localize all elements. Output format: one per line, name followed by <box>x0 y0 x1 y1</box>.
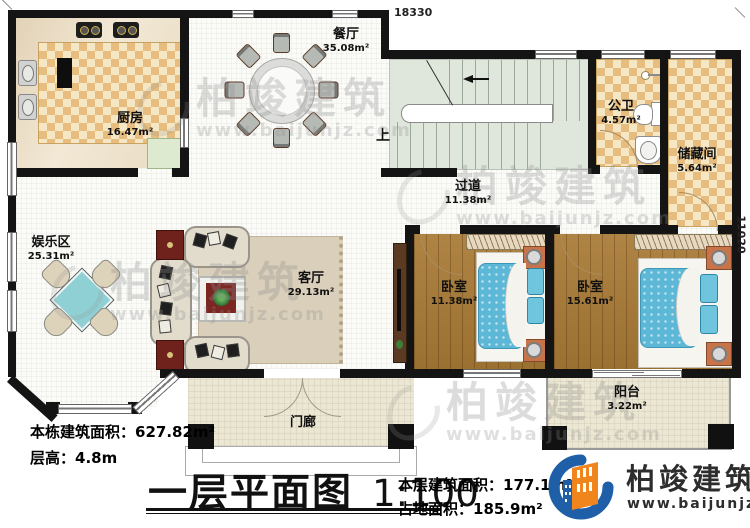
plant-icon <box>396 340 403 349</box>
porch-steps-inner <box>202 446 400 463</box>
brand-name: 柏竣建筑 <box>626 456 750 498</box>
title-underline-thin <box>146 513 440 514</box>
bed2-pillow <box>700 274 718 303</box>
lamp-icon <box>526 342 542 358</box>
window-stair-top <box>535 50 577 59</box>
wall-kitchen-bottom <box>8 168 138 177</box>
bed1-pillow <box>527 297 544 324</box>
plant-icon <box>213 289 230 306</box>
dining-chair <box>273 128 290 148</box>
kitchen-pass-window <box>180 118 189 148</box>
stove-icon <box>113 22 139 38</box>
floor-height-line: 层高：4.8m <box>30 447 117 468</box>
dimension-right: 11020 <box>735 215 748 253</box>
room-label-bedroom2: 卧室15.61m² <box>560 281 620 307</box>
bay-window-bottom <box>58 404 132 414</box>
building-area-value: 627.82m² <box>135 423 215 441</box>
stair-arrow-line <box>473 78 489 80</box>
kitchen-sink-icon <box>18 60 37 86</box>
tv-icon <box>397 269 401 331</box>
brand-url: www.baijunjz.com <box>627 496 750 512</box>
wall-kitchen-right-lower <box>180 148 189 177</box>
window-left-1 <box>7 142 17 196</box>
room-label-entertainment: 娱乐区25.31m² <box>16 236 86 262</box>
sofa-pillow <box>195 343 209 358</box>
window-storage-top <box>670 50 716 59</box>
staircase <box>389 59 590 170</box>
window-dining-top-2 <box>332 10 358 18</box>
window-bath-top <box>601 50 645 59</box>
dimension-top: 18330 <box>394 6 432 19</box>
room-label-hallway: 过道11.38m² <box>432 180 504 206</box>
wall-bedroom1-bottom-b <box>521 369 553 378</box>
bath-sink-icon <box>635 136 662 164</box>
brand-logo: 柏竣建筑 www.baijunjz.com <box>538 452 742 526</box>
window-bedroom1-bottom <box>463 369 521 378</box>
wall-bedrooms-top-c <box>600 225 678 234</box>
stove-icon <box>76 22 102 38</box>
floor-plan-canvas: 上 <box>0 0 750 528</box>
wall-bath-bottom-stub2 <box>638 165 662 174</box>
wall-kitchen-right-upper <box>180 10 189 120</box>
wall-right <box>732 50 741 378</box>
room-label-kitchen: 厨房16.47m² <box>95 112 165 138</box>
wall-bedroom-divider <box>545 225 554 378</box>
bed2-sheet <box>676 268 699 346</box>
kitchen-sink-icon <box>18 94 37 120</box>
stairs-up-label: 上 <box>376 125 390 145</box>
wall-stair-bottom <box>381 168 457 177</box>
wall-bedroom2-bottom-a <box>553 369 592 378</box>
floor-area-label: 本层建筑面积： <box>398 476 503 494</box>
building-area-label: 本栋建筑面积： <box>30 423 135 441</box>
sofa-pillow <box>159 301 173 316</box>
window-left-3 <box>7 290 17 332</box>
wall-storage-left <box>660 59 668 234</box>
bed2-pillow <box>700 305 718 334</box>
bed1-sheet <box>505 263 526 347</box>
room-label-porch: 门廊 <box>280 416 326 431</box>
dining-table <box>249 58 315 124</box>
lamp-icon <box>711 250 727 266</box>
sofa-pillow <box>226 343 240 358</box>
sofa-pillow <box>207 231 221 246</box>
wall-bottom-mid <box>340 369 414 378</box>
footprint-value: 185.9m² <box>473 500 543 518</box>
brand-logo-icon <box>538 452 624 524</box>
lamp-icon <box>526 249 542 265</box>
balcony-sliding-door <box>592 370 682 378</box>
balcony-pillar <box>708 424 734 449</box>
footprint-label: 占地面积： <box>398 500 473 518</box>
room-label-bedroom1: 卧室11.38m² <box>424 281 484 307</box>
room-label-balcony: 阳台3.22m² <box>600 386 654 412</box>
sofa-pillow <box>158 319 171 333</box>
refrigerator-icon <box>57 58 72 88</box>
floor-height-label: 层高： <box>30 449 75 467</box>
corner-tick <box>735 7 746 18</box>
lamp-icon <box>711 346 727 362</box>
title-underline-thick <box>146 508 440 511</box>
window-dining-top-1 <box>232 10 254 18</box>
balcony-rail-right <box>729 378 731 426</box>
wall-bedroom1-bottom-a <box>414 369 463 378</box>
corner-tick <box>2 0 13 10</box>
balcony-rail-bottom <box>548 448 732 450</box>
balcony-pillar <box>542 426 567 450</box>
side-table <box>156 340 184 370</box>
dining-chair <box>273 33 290 53</box>
building-area-line: 本栋建筑面积：627.82m² <box>30 421 215 442</box>
footprint-line: 占地面积：185.9m² <box>398 498 543 519</box>
room-label-dining: 餐厅35.08m² <box>314 28 378 54</box>
dining-chair <box>319 82 339 99</box>
bed1-pillow <box>527 268 544 295</box>
tv-cabinet <box>393 243 407 363</box>
wall-bedroom2-bottom-b <box>682 369 740 378</box>
porch-pillar <box>388 424 414 449</box>
kitchen-appliance <box>147 138 181 169</box>
floor-height-value: 4.8m <box>75 449 117 467</box>
room-label-living: 客厅29.13m² <box>282 272 340 298</box>
stair-handrail <box>401 104 553 123</box>
room-label-storage: 储藏间5.64m² <box>667 148 727 174</box>
dining-chair <box>225 82 245 99</box>
side-table <box>156 230 184 260</box>
coffee-table <box>198 276 246 322</box>
room-label-bath: 公卫4.57m² <box>594 100 648 126</box>
stair-direction-arrow <box>463 75 473 83</box>
wall-bath-bottom-stub1 <box>588 165 600 174</box>
